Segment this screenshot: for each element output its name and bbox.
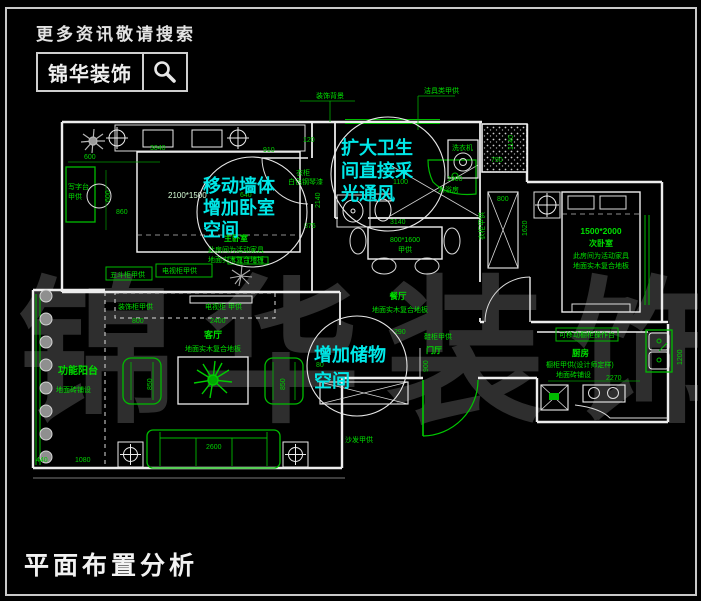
dim-2600: 2600 [206, 444, 222, 451]
balcony-name: 功能阳台 [58, 364, 98, 377]
brand-logo-text: 锦华装饰 [38, 54, 144, 90]
kitchen-note1: 橱柜甲供(设计师定样) [546, 360, 614, 369]
closet-label-1: 衣柜 [296, 168, 310, 177]
master-note2: 地面实木复合地板 [208, 255, 264, 264]
washer-label: 洗衣机 [452, 143, 473, 152]
second-bedroom-furniture [488, 192, 640, 312]
dining-name: 餐厅 [388, 291, 407, 301]
dim-800w: 800 [497, 196, 509, 203]
dim-1140: 1140 [508, 135, 515, 150]
dim-800l: 800 [132, 318, 144, 325]
master-note1: 此房间为活动家具 [208, 245, 264, 254]
entry-name: 门厅 [426, 345, 442, 355]
search-icon[interactable] [144, 54, 186, 90]
dim-1620: 1620 [522, 220, 529, 236]
tv-living-label: 电视柜 甲供 [205, 302, 242, 311]
brand-search-box[interactable]: 锦华装饰 [36, 52, 188, 92]
dim-1080: 1080 [75, 457, 91, 464]
kitchen-note2: 地面砖铺设 [556, 370, 591, 379]
kitchen-texts: 可移动橱柜操作台 厨房 橱柜甲供(设计师定样) 地面砖铺设 2270 1200 [546, 330, 684, 382]
second-bed-size: 1500*2000 [580, 226, 621, 236]
balcony-decor: 功能阳台 地面砖铺设 440 1080 [33, 290, 345, 478]
chest-label: 五斗柜甲供 [110, 270, 145, 279]
plant-master [81, 129, 105, 153]
dim-1200: 1200 [677, 349, 684, 365]
dim-2140: 2140 [315, 192, 322, 208]
bubble-bathroom-line2: 间直接采 [341, 160, 414, 181]
second-note2: 地面实木复合地板 [573, 261, 629, 270]
desk-label-1: 写字台 [68, 182, 89, 191]
dining-texts: 3140 800*1600 甲供 餐厅 地面实木复合地板 [372, 219, 428, 314]
leader-lines [300, 96, 455, 130]
table-supply: 甲供 [398, 245, 412, 254]
page-title: 平面布置分析 [24, 546, 198, 582]
dim-900: 900 [423, 360, 430, 372]
balcony-floor: 地面砖铺设 [56, 385, 91, 394]
dim-790: 790 [491, 157, 503, 164]
living-name: 客厅 [203, 329, 222, 340]
screenshot-root: 锦华装饰 更多资讯敬请搜索 锦华装饰 平面布置分析 [0, 0, 701, 601]
sofa-label: 沙发甲供 [345, 435, 373, 444]
header: 更多资讯敬请搜索 锦华装饰 [36, 20, 196, 92]
bubble-storage-line2: 空间 [314, 370, 350, 391]
plant-master2 [230, 265, 252, 286]
deco-bg-label: 装饰背景 [316, 91, 344, 100]
living-floor: 地面实木复合地板 [185, 344, 241, 353]
dim-850l: 850 [147, 378, 154, 390]
shaft-hatch [482, 124, 527, 172]
dim-2400: 2400 [210, 318, 226, 325]
platform-label: 可移动橱柜操作台 [559, 330, 615, 339]
closet-label-2: 白色钢琴漆 [288, 177, 323, 186]
dim-860: 860 [116, 209, 128, 216]
bubble-bathroom-line3: 光通风 [340, 183, 395, 204]
shower-label: 淋浴房 [438, 185, 459, 194]
dim-440: 440 [36, 457, 48, 464]
entry-area: 门厅 鞋柜甲供 290 900 80 [316, 329, 452, 404]
bubble-bedroom-line2: 增加卧室 [203, 197, 275, 218]
bubble-bedroom-line3: 空间 [203, 219, 239, 240]
desk-label-2: 甲供 [68, 192, 82, 201]
dim-120: 120 [303, 137, 315, 144]
deco-cabinet-label: 装饰柜甲供 [118, 302, 153, 311]
shoe-cabinet-label: 鞋柜甲供 [424, 332, 452, 341]
dim-1000: 1000 [447, 176, 463, 183]
second-room-name: 次卧室 [589, 238, 613, 248]
dim-910: 910 [263, 147, 275, 154]
tv-master-label: 电视柜甲供 [162, 266, 197, 275]
wardrobe-second-label: 衣柜甲供 [477, 212, 486, 240]
master-bed-size: 2100*1500 [168, 191, 207, 200]
table-size: 800*1600 [390, 237, 420, 244]
annotation-bubbles: 移动墙体 增加卧室 空间 扩大卫生 间直接采 光通风 增加储物 空间 [197, 117, 445, 416]
bubble-storage-line1: 增加储物 [314, 344, 386, 365]
second-bedroom-texts: 1500*2000 次卧室 此房间为活动家具 地面实木复合地板 800 1620… [477, 196, 629, 270]
second-note1: 此房间为活动家具 [573, 251, 629, 260]
bubble-bedroom-line1: 移动墙体 [203, 175, 276, 196]
bubble-bathroom-line1: 扩大卫生 [341, 137, 413, 158]
dim-3040: 3040 [150, 145, 166, 152]
sanitary-label: 洁具类甲供 [424, 86, 459, 95]
dim-3140: 3140 [390, 219, 406, 226]
plant-living [194, 361, 232, 398]
search-hint-text: 更多资讯敬请搜索 [36, 20, 196, 45]
kitchen-name: 厨房 [572, 348, 589, 358]
dining-floor: 地面实木复合地板 [372, 305, 428, 314]
dim-2270: 2270 [606, 375, 622, 382]
dim-850r: 850 [280, 378, 287, 390]
dim-600: 600 [84, 154, 96, 161]
